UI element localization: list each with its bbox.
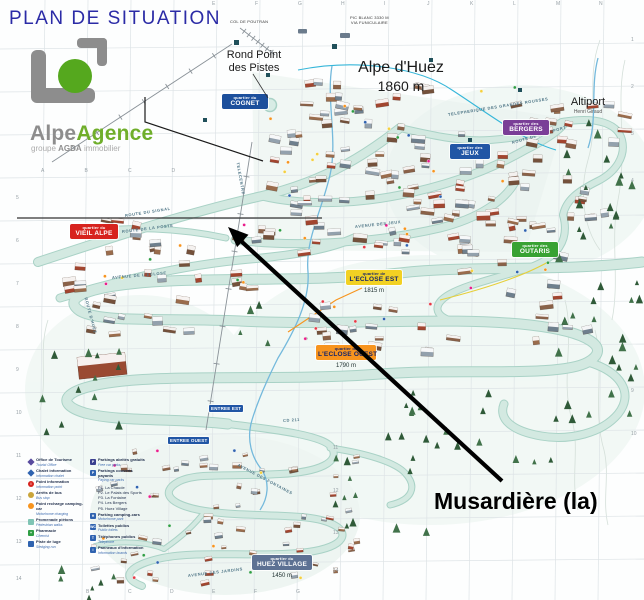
quarter-badge-jeux: quartier desJEUX bbox=[450, 144, 490, 159]
office-de-tourisme-icon bbox=[27, 458, 34, 465]
entrance-badge-entree-ouest: ENTREE OUEST bbox=[168, 437, 209, 444]
grid-index-label: K bbox=[470, 1, 473, 7]
quarter-badge-l-eclose-est: quartier deL'ECLOSE EST bbox=[346, 270, 402, 285]
legend-column-2: PParkings abrités gratuitsFree car parks… bbox=[90, 458, 147, 557]
grid-index-label: F bbox=[254, 589, 257, 595]
grid-index-label: E bbox=[212, 1, 215, 7]
quarter-badge-outaris: quartier desOUTARIS bbox=[512, 242, 558, 257]
grid-index-label: D bbox=[172, 168, 176, 174]
grid-index-label: G bbox=[298, 1, 302, 7]
legend-item-text: Téléphones publicsTelephone bbox=[98, 535, 147, 544]
map-legend: Office de TourismeTourist OfficeChalet i… bbox=[28, 458, 148, 557]
grid-index-label: 10 bbox=[16, 410, 22, 416]
large-chalet-building bbox=[77, 352, 127, 379]
grid-index-label: 11 bbox=[16, 453, 21, 459]
legend-item-text: Toilettes publicsPublic toilets bbox=[98, 524, 147, 533]
legend-item: TTéléphones publicsTelephone bbox=[90, 535, 147, 544]
pic-blanc-label: PIC BLANC 3330 M VIA FUNICULAIRE bbox=[350, 16, 389, 26]
grid-index-label: 2 bbox=[631, 84, 634, 90]
logo-word-agence: Agence bbox=[76, 122, 153, 145]
quarter-name: VIEIL ALPE bbox=[72, 230, 116, 237]
grid-index-label: L bbox=[513, 1, 516, 7]
legend-item-text: Arrêts de busBus stop bbox=[36, 491, 85, 500]
legend-item: Chalet informationInformation chalet bbox=[28, 469, 85, 478]
legend-item-text: PharmacieChemist bbox=[36, 529, 85, 538]
legend-item-text: Point informationInformation point bbox=[36, 480, 85, 489]
rond-point-des-pistes-label: Rond Point des Pistes bbox=[214, 49, 294, 74]
grid-index-label: F bbox=[255, 1, 258, 7]
grid-index-label: 12 bbox=[333, 488, 339, 494]
quarter-name: OUTARIS bbox=[514, 248, 556, 255]
grid-index-label: 11 bbox=[333, 445, 338, 451]
legend-item: Office de TourismeTourist Office bbox=[28, 458, 85, 467]
legend-item: WCToilettes publicsPublic toilets bbox=[90, 524, 147, 533]
musardiere-property-label: Musardière (la) bbox=[434, 488, 598, 515]
grid-index-label: C bbox=[128, 589, 132, 595]
legend-column-1: Office de TourismeTourist OfficeChalet i… bbox=[28, 458, 85, 557]
t-l-phones-publics-icon: T bbox=[90, 535, 96, 541]
promenade-pi-tons-icon bbox=[28, 519, 34, 525]
legend-item-text: Promenade piétonsPedestrian walks bbox=[36, 518, 85, 527]
grid-index-label: A bbox=[41, 168, 44, 174]
quarter-altitude-label: 1815 m bbox=[364, 288, 384, 294]
grid-index-label: I bbox=[384, 1, 385, 7]
altiport-sub-label: Henri Giraud bbox=[556, 109, 620, 115]
legend-item: +PharmacieChemist bbox=[28, 529, 85, 538]
grid-index-label: C bbox=[128, 168, 132, 174]
grid-index-label: 10 bbox=[631, 431, 637, 437]
parkings-couverts-payants-icon: P bbox=[90, 470, 96, 476]
grid-index-label: H bbox=[341, 1, 345, 7]
legend-item: HParking camping-carsMotorhome park bbox=[90, 513, 147, 522]
grid-index-label: B bbox=[86, 589, 89, 595]
piste-de-luge-icon bbox=[28, 541, 34, 547]
grid-index-label: 9 bbox=[16, 367, 19, 373]
resort-name-label: Alpe d'Huez bbox=[345, 59, 457, 77]
quarter-name: L'ECLOSE EST bbox=[348, 276, 400, 283]
logo-subtitle: groupe AGDA immobilier bbox=[31, 144, 120, 153]
grid-index-label: 7 bbox=[16, 281, 19, 287]
chalet-information-icon bbox=[27, 469, 34, 476]
parkings-abrit-s-gratuits-icon: P bbox=[90, 459, 96, 465]
legend-item: Arrêts de busBus stop bbox=[28, 491, 85, 500]
point-information-icon: i bbox=[28, 481, 34, 487]
grid-index-label: J bbox=[427, 1, 430, 7]
parking-camping-cars-icon: H bbox=[90, 513, 96, 519]
quarter-badge-huez-village: quartier duHUEZ VILLAGE bbox=[252, 555, 312, 570]
grid-index-label: 3 bbox=[631, 131, 634, 137]
grid-index-label: 14 bbox=[333, 568, 339, 574]
logo-green-circle bbox=[58, 59, 92, 93]
plan-de-situation-page: PLAN DE SITUATION AlpeAgence groupe AGDA… bbox=[0, 0, 644, 600]
quarter-name: COGNET bbox=[224, 100, 266, 107]
legend-item-text: Chalet informationInformation chalet bbox=[36, 469, 85, 478]
grid-index-label: 1 bbox=[631, 37, 634, 43]
logo-word-alpe: Alpe bbox=[30, 122, 76, 145]
point-recharge-camping-car-icon bbox=[28, 503, 34, 509]
quarter-name: JEUX bbox=[452, 150, 488, 157]
grid-index-label: B bbox=[85, 168, 88, 174]
legend-item: Piste de lugeSledging run bbox=[28, 540, 85, 549]
legend-item-text: Point recharge camping-carMotorhome char… bbox=[36, 502, 85, 515]
page-title: PLAN DE SITUATION bbox=[9, 8, 221, 30]
grid-index-label: 13 bbox=[333, 530, 339, 536]
arr-ts-de-bus-icon bbox=[28, 492, 34, 498]
legend-item: Point recharge camping-carMotorhome char… bbox=[28, 502, 85, 515]
grid-index-label: 12 bbox=[16, 496, 22, 502]
grid-index-label: G bbox=[296, 589, 300, 595]
legend-item-text: Piste de lugeSledging run bbox=[36, 540, 85, 549]
grid-index-label: 8 bbox=[16, 324, 19, 330]
legend-item-text: Parking camping-carsMotorhome park bbox=[98, 513, 147, 522]
toilettes-publics-icon: WC bbox=[90, 524, 96, 530]
grid-index-label: 14 bbox=[16, 576, 22, 582]
col-de-poutran-label: COL DE POUTRAN bbox=[230, 19, 268, 24]
legend-item-text: Parkings couverts payantsPaying car park… bbox=[98, 469, 147, 482]
grid-index-label: E bbox=[212, 589, 215, 595]
quarter-badge-cognet: quartier duCOGNET bbox=[222, 94, 268, 109]
grid-index-label: D bbox=[170, 589, 174, 595]
legend-item-text: Panneaux d'informationInformation boards bbox=[98, 546, 147, 555]
grid-index-label: 9 bbox=[631, 388, 634, 394]
logo-wordmark: AlpeAgence bbox=[30, 122, 153, 146]
quarter-altitude-label: 1790 m bbox=[336, 363, 356, 369]
grid-index-label: 13 bbox=[16, 539, 22, 545]
quarter-badge-vieil-alpe: quartier duVIEIL ALPE bbox=[70, 224, 118, 239]
quarter-name: BERGERS bbox=[505, 126, 547, 133]
grid-index-label: 4 bbox=[631, 178, 634, 184]
grid-index-label: M bbox=[556, 1, 560, 7]
quarter-badge-bergers: quartier desBERGERS bbox=[503, 120, 549, 135]
grid-index-label: N bbox=[599, 1, 603, 7]
quarter-badge-l-eclose-ouest: quartier deL'ECLOSE OUEST bbox=[316, 345, 376, 360]
grid-index-label: 5 bbox=[16, 195, 19, 201]
quarter-name: HUEZ VILLAGE bbox=[254, 561, 310, 568]
grid-index-label: 6 bbox=[16, 238, 19, 244]
quarter-altitude-label: 1450 m bbox=[272, 573, 292, 579]
legend-parking-list: P1. La ChaudeP2. Le Palais des SportsP3.… bbox=[98, 485, 147, 511]
legend-item-text: Office de TourismeTourist Office bbox=[36, 458, 85, 467]
quarter-name: L'ECLOSE OUEST bbox=[318, 351, 374, 358]
legend-item: PParkings abrités gratuitsFree car parks bbox=[90, 458, 147, 467]
legend-item: iPoint informationInformation point bbox=[28, 480, 85, 489]
logo-corner-vertical bbox=[97, 38, 107, 66]
alpe-agence-logo bbox=[28, 36, 123, 108]
legend-item: Promenade piétonsPedestrian walks bbox=[28, 518, 85, 527]
legend-item: PParkings couverts payantsPaying car par… bbox=[90, 469, 147, 482]
resort-altitude-label: 1860 m bbox=[345, 78, 457, 94]
legend-item: iPanneaux d'informationInformation board… bbox=[90, 546, 147, 555]
pharmacie-icon: + bbox=[28, 530, 34, 536]
logo-l-horizontal bbox=[31, 88, 95, 103]
altiport-label: Altiport bbox=[556, 96, 620, 108]
entrance-badge-entree-est: ENTREE EST bbox=[209, 405, 243, 412]
legend-item-text: Parkings abrités gratuitsFree car parks bbox=[98, 458, 147, 467]
panneaux-d-information-icon: i bbox=[90, 547, 96, 553]
